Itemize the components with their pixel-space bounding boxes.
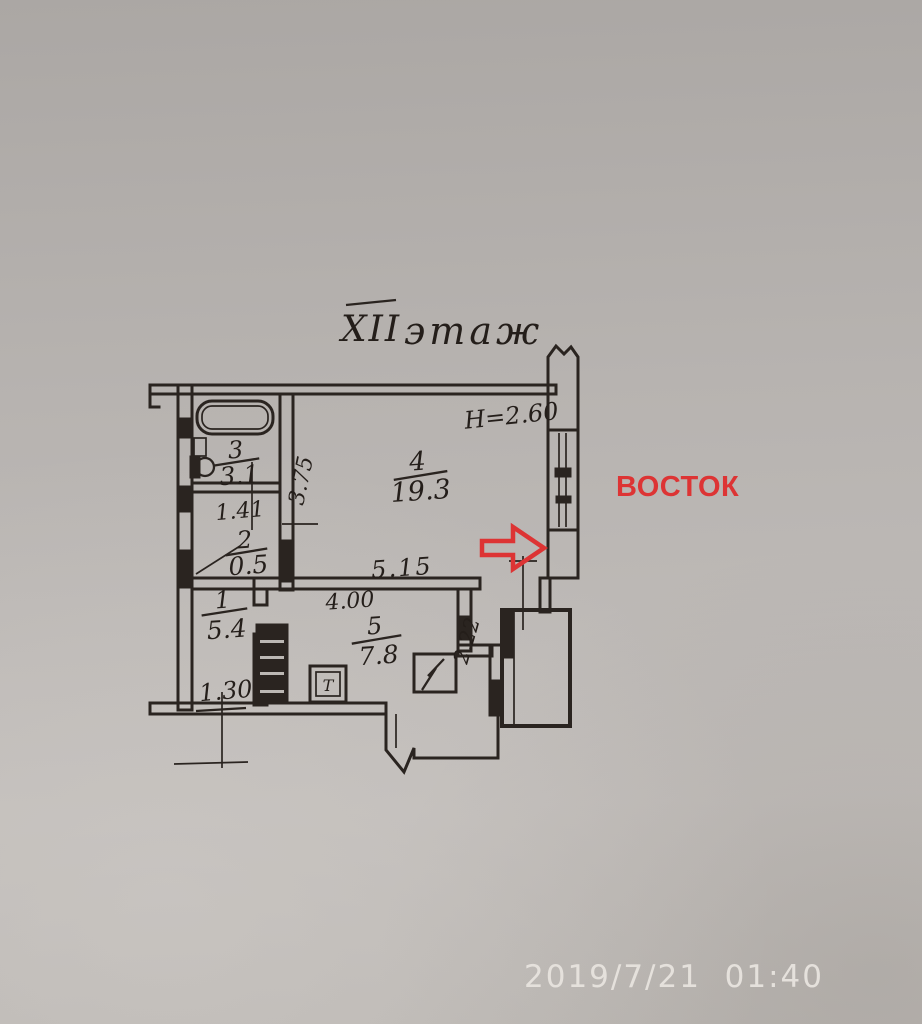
dim-bathroom-width: 1.41 xyxy=(214,497,265,526)
room-area: 3.1 xyxy=(219,459,261,491)
floor-title-word: этаж xyxy=(404,309,543,353)
room-label-hallway: 1 5.4 xyxy=(200,584,250,645)
dim-living-depth: 3.75 xyxy=(284,454,319,507)
balcony xyxy=(502,556,570,726)
wall-fill-segment xyxy=(180,418,190,438)
floor-plan-drawing: Т XII этаж H=2.60 3 xyxy=(0,0,922,1024)
wall-fill-segment xyxy=(280,540,293,582)
room-label-bathroom: 3 3.1 xyxy=(212,434,262,491)
east-arrow-icon xyxy=(482,527,544,569)
vent-shaft-hatch xyxy=(260,640,284,643)
vent-shaft-hatch xyxy=(260,672,284,675)
room-label-kitchen: 5 7.8 xyxy=(350,610,404,671)
room-number: 4 xyxy=(407,447,427,478)
ceiling-height-label: H=2.60 xyxy=(462,397,560,435)
vent-shaft-hatch xyxy=(260,690,284,693)
electric-bolt-icon xyxy=(422,659,444,690)
room-label-storage: 2 0.5 xyxy=(224,525,270,582)
room-area: 0.5 xyxy=(228,549,270,581)
dim-hall-width: 1.30 xyxy=(198,675,254,708)
cabinet-icon xyxy=(194,438,206,456)
dim-tick-130-end xyxy=(174,762,248,764)
room-area: 7.8 xyxy=(358,639,400,671)
wall-balcony-link xyxy=(540,578,550,612)
wall-fill-segment xyxy=(502,610,514,658)
wall-fill-segment xyxy=(178,550,192,588)
wall-top xyxy=(150,385,556,394)
wall-fill-segment xyxy=(178,486,192,512)
wall-top-left-hook xyxy=(150,394,159,407)
dim-tick-130 xyxy=(196,708,246,711)
wall-kitchen-left xyxy=(254,589,267,605)
stove-label: Т xyxy=(323,676,335,695)
east-window-frame-mark xyxy=(555,468,571,477)
dim-kitchen-depth: 2.22 xyxy=(448,615,484,668)
wall-east-lower xyxy=(548,530,578,578)
east-window xyxy=(548,430,578,530)
room-area: 5.4 xyxy=(206,613,248,645)
room-number: 5 xyxy=(366,612,383,641)
floor-plan-photo: Т XII этаж H=2.60 3 xyxy=(0,0,922,1024)
wall-recess xyxy=(386,714,498,772)
room-area: 19.3 xyxy=(390,474,452,509)
floor-title-overline xyxy=(346,300,396,305)
room-label-living-room: 4 19.3 xyxy=(388,445,452,509)
dim-kitchen-width: 4.00 xyxy=(324,587,376,615)
floor-title-roman: XII xyxy=(338,309,401,350)
camera-timestamp: 2019/7/21 01:40 xyxy=(524,959,824,995)
dim-living-width: 5.15 xyxy=(370,552,433,584)
east-window-frame-mark xyxy=(556,496,571,503)
vent-shaft-hatch xyxy=(260,656,284,659)
bathtub-inner-line xyxy=(202,406,268,429)
east-direction-label: ВОСТОК xyxy=(616,471,739,504)
